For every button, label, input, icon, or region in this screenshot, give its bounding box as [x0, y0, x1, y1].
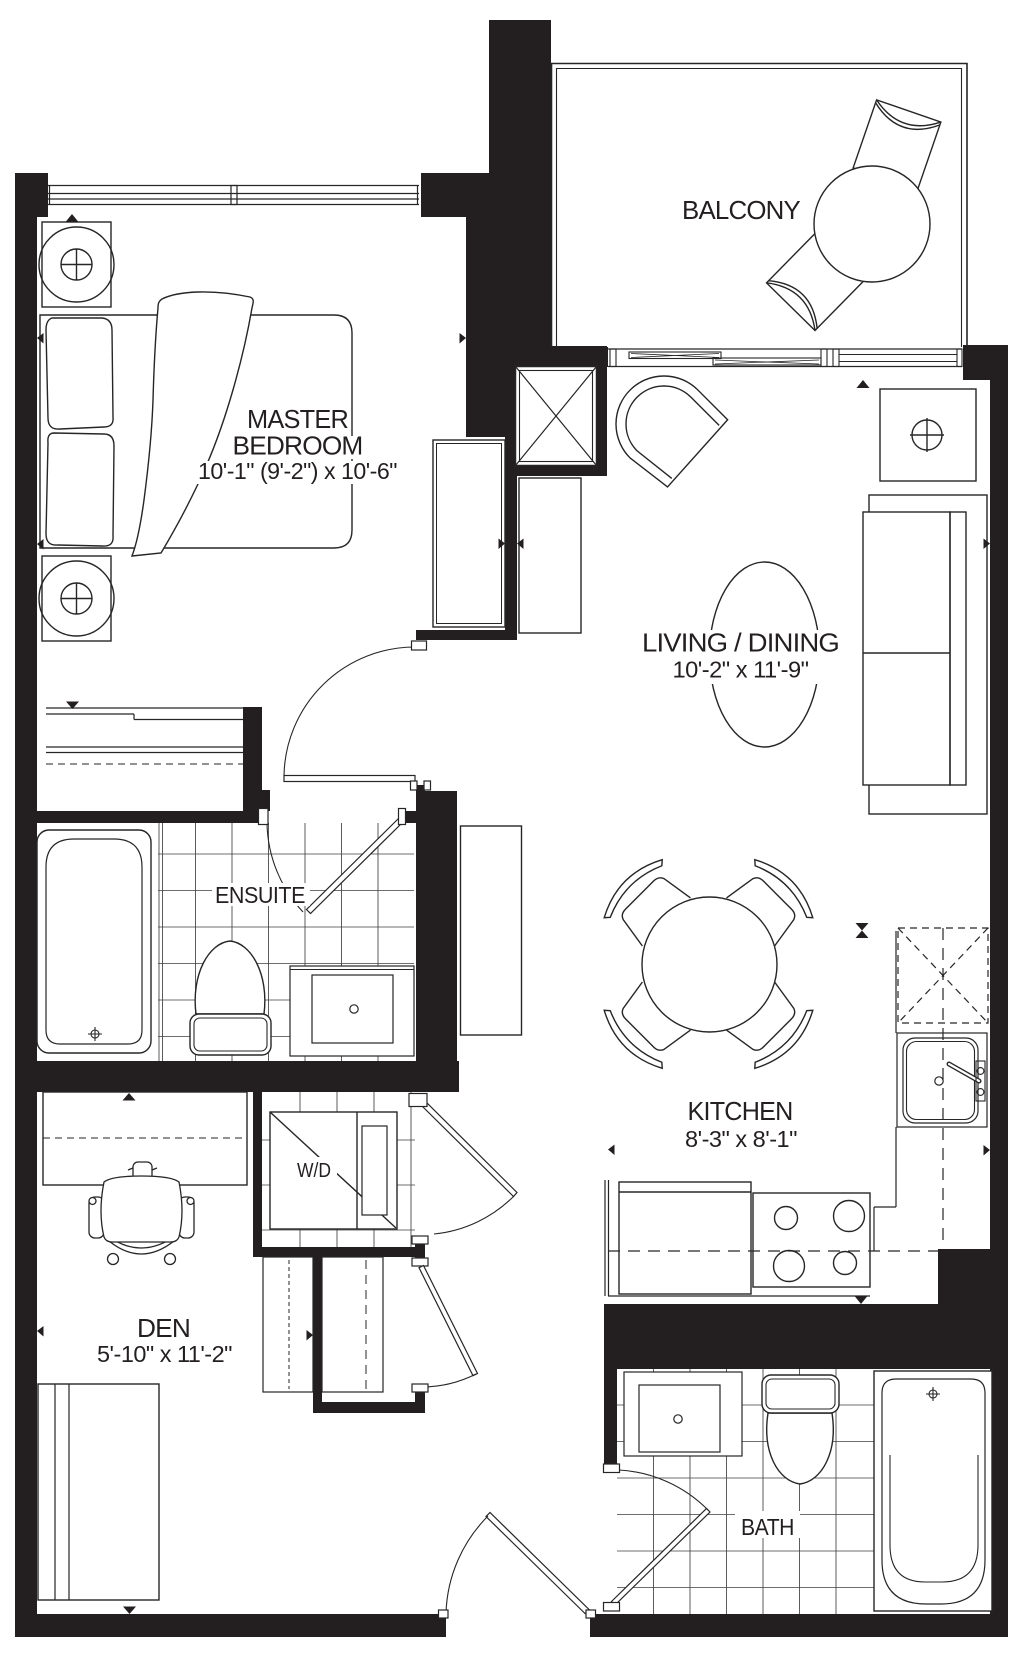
svg-text:BALCONY: BALCONY: [682, 195, 800, 225]
svg-text:BEDROOM: BEDROOM: [233, 431, 363, 461]
svg-text:ENSUITE: ENSUITE: [215, 882, 305, 908]
svg-text:W/D: W/D: [297, 1160, 331, 1182]
svg-text:DEN: DEN: [137, 1313, 190, 1343]
svg-text:8'-3" x 8'-1": 8'-3" x 8'-1": [685, 1126, 797, 1152]
svg-text:10'-2" x 11'-9": 10'-2" x 11'-9": [673, 657, 809, 683]
svg-text:10'-1" (9'-2") x 10'-6": 10'-1" (9'-2") x 10'-6": [198, 458, 397, 484]
svg-text:KITCHEN: KITCHEN: [688, 1096, 793, 1126]
svg-text:5'-10" x 11'-2": 5'-10" x 11'-2": [97, 1341, 232, 1367]
svg-text:MASTER: MASTER: [247, 404, 348, 434]
svg-text:LIVING / DINING: LIVING / DINING: [642, 628, 839, 658]
svg-text:BATH: BATH: [741, 1514, 794, 1540]
